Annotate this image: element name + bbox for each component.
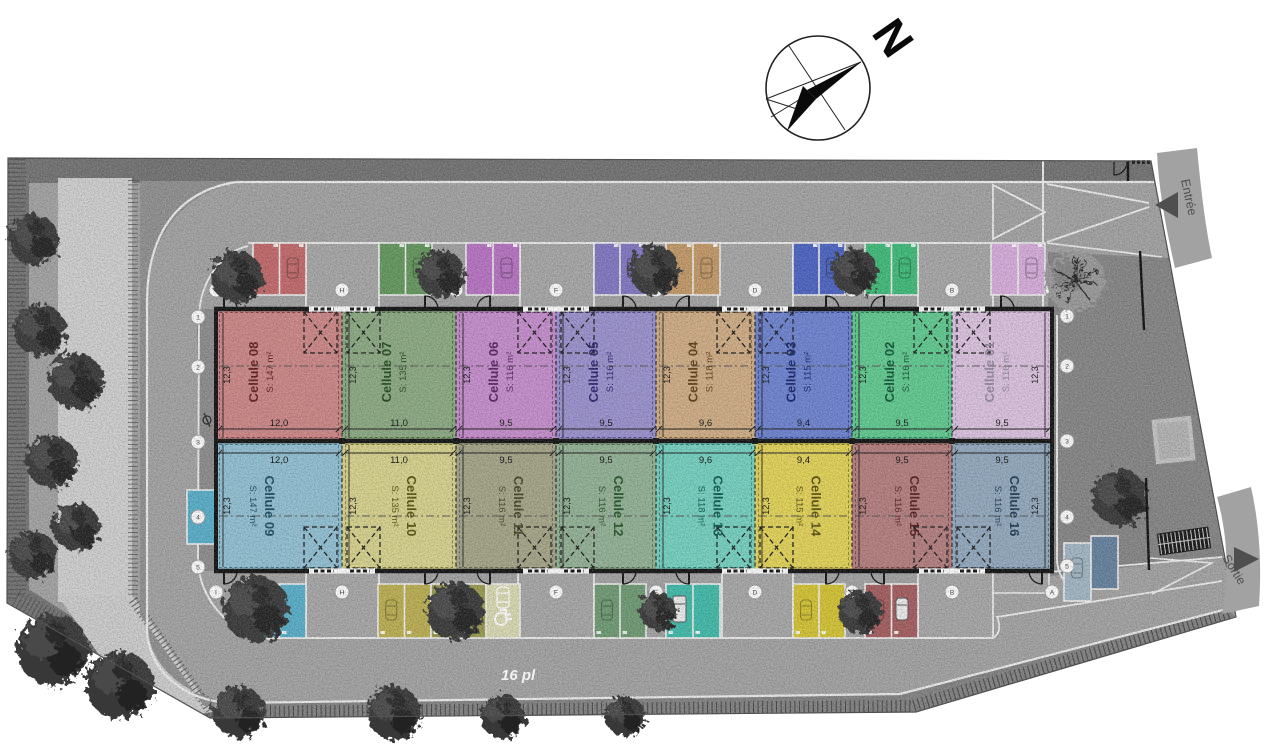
svg-text:16 pl: 16 pl bbox=[501, 667, 536, 684]
